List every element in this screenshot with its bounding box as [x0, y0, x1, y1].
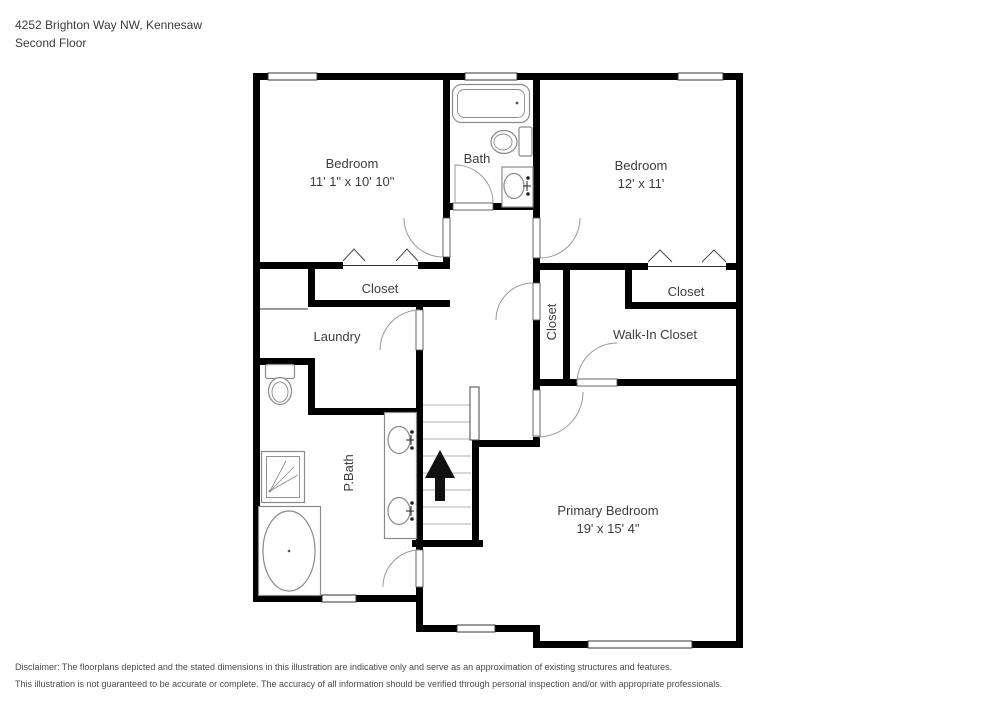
- door-swing-arc: [538, 392, 583, 437]
- room-name: Walk-In Closet: [613, 326, 697, 344]
- faucet-dot: [410, 517, 414, 521]
- door-leaf: [443, 218, 450, 257]
- bathtub-symbol: [453, 85, 530, 123]
- room-name: Closet: [543, 304, 561, 341]
- wall: [726, 263, 736, 270]
- door-swing-arc: [540, 218, 580, 258]
- room-dims: 12' x 11': [615, 175, 668, 193]
- bifold-chevron: [648, 250, 672, 262]
- room-name: Closet: [362, 280, 399, 298]
- wall: [472, 440, 540, 447]
- room-name: Bedroom: [615, 157, 668, 175]
- room-dims: 19' x 15' 4": [557, 520, 658, 538]
- wall: [533, 263, 648, 270]
- disclaimer-line-1: Disclaimer: The floorplans depicted and …: [15, 659, 722, 676]
- window: [465, 73, 517, 80]
- wall: [443, 210, 450, 218]
- room-name: P.Bath: [340, 454, 358, 491]
- faucet-dot: [410, 501, 414, 505]
- wall: [416, 587, 423, 595]
- shower-head: [269, 490, 272, 493]
- wall: [625, 302, 736, 309]
- window: [588, 641, 692, 648]
- room-label-pbath: P.Bath: [340, 454, 358, 491]
- wall: [533, 258, 540, 283]
- sink-basin: [504, 174, 524, 199]
- room-label-primary-bedroom: Primary Bedroom 19' x 15' 4": [557, 502, 658, 538]
- wall: [533, 379, 577, 386]
- door-leaf: [577, 379, 617, 386]
- room-name: Primary Bedroom: [557, 502, 658, 520]
- door-swing-arc: [404, 218, 443, 257]
- garden-tub-symbol: [259, 507, 321, 596]
- floorplan-drawing: [0, 0, 1000, 707]
- sink-vanity-symbol: [502, 167, 533, 207]
- wall: [412, 540, 483, 547]
- door-leaf: [416, 310, 423, 350]
- wall: [617, 379, 736, 386]
- disclaimer: Disclaimer: The floorplans depicted and …: [15, 659, 722, 693]
- door-leaf: [533, 390, 540, 436]
- double-vanity-symbol: [385, 413, 417, 539]
- disclaimer-line-2: This illustration is not guaranteed to b…: [15, 676, 722, 693]
- room-name: Bedroom: [310, 155, 395, 173]
- wall: [533, 80, 540, 218]
- door-leaf: [416, 550, 423, 587]
- wall: [563, 270, 570, 385]
- wall: [418, 262, 450, 269]
- toilet-symbol: [266, 365, 295, 405]
- window: [268, 73, 317, 80]
- toilet-tank: [266, 365, 295, 379]
- bathtub-drain: [516, 102, 519, 105]
- room-name: Bath: [464, 150, 491, 168]
- bifold-chevron: [702, 250, 726, 262]
- bifold-chevron: [396, 249, 418, 261]
- room-label-walk-in-closet: Walk-In Closet: [613, 326, 697, 344]
- room-label-bedroom2: Bedroom 12' x 11': [615, 157, 668, 193]
- wall: [416, 300, 423, 310]
- door-leaf: [533, 283, 540, 320]
- staircase: [423, 387, 479, 524]
- wall: [308, 358, 315, 415]
- window: [457, 625, 495, 632]
- wall: [443, 80, 450, 210]
- fixtures: [259, 85, 534, 596]
- door-swing-arc: [455, 165, 493, 203]
- room-label-bedroom1: Bedroom 11' 1" x 10' 10": [310, 155, 395, 191]
- door-leaf: [533, 218, 540, 258]
- bathtub-inner: [458, 90, 525, 118]
- room-label-closet-left: Closet: [362, 280, 399, 298]
- door-swing-arc: [577, 343, 617, 383]
- window: [322, 595, 356, 602]
- room-label-closet-hall: Closet: [543, 304, 561, 341]
- door-swing-arc: [496, 283, 533, 320]
- bifold-chevron: [343, 249, 365, 261]
- tub-drain: [288, 550, 291, 553]
- wall: [253, 262, 343, 269]
- stairs-up-arrow: [425, 450, 455, 501]
- faucet-dot: [410, 430, 414, 434]
- toilet-bowl-inner: [272, 382, 288, 402]
- shower-symbol: [262, 452, 305, 503]
- toilet-tank: [519, 127, 532, 156]
- door-swing-arc: [380, 310, 420, 350]
- room-dims: 11' 1" x 10' 10": [310, 173, 395, 191]
- door-swing-arc: [383, 550, 420, 587]
- stair-rail-opening: [470, 387, 479, 440]
- floorplan-page: 4252 Brighton Way NW, Kennesaw Second Fl…: [0, 0, 1000, 707]
- wall: [736, 73, 743, 648]
- faucet-dot: [526, 176, 530, 180]
- room-name: Closet: [668, 283, 705, 301]
- wall: [472, 447, 479, 547]
- room-label-bath: Bath: [464, 150, 491, 168]
- wall: [533, 386, 540, 390]
- faucet-dot: [526, 192, 530, 196]
- window: [678, 73, 723, 80]
- toilet-bowl-inner: [494, 134, 512, 150]
- faucet-dot: [410, 446, 414, 450]
- room-label-closet-right: Closet: [668, 283, 705, 301]
- room-label-laundry: Laundry: [314, 328, 361, 346]
- wall: [533, 320, 540, 379]
- room-name: Laundry: [314, 328, 361, 346]
- wall: [443, 203, 453, 210]
- door-leaf: [453, 203, 493, 210]
- wall: [308, 300, 450, 307]
- toilet-symbol: [491, 127, 532, 156]
